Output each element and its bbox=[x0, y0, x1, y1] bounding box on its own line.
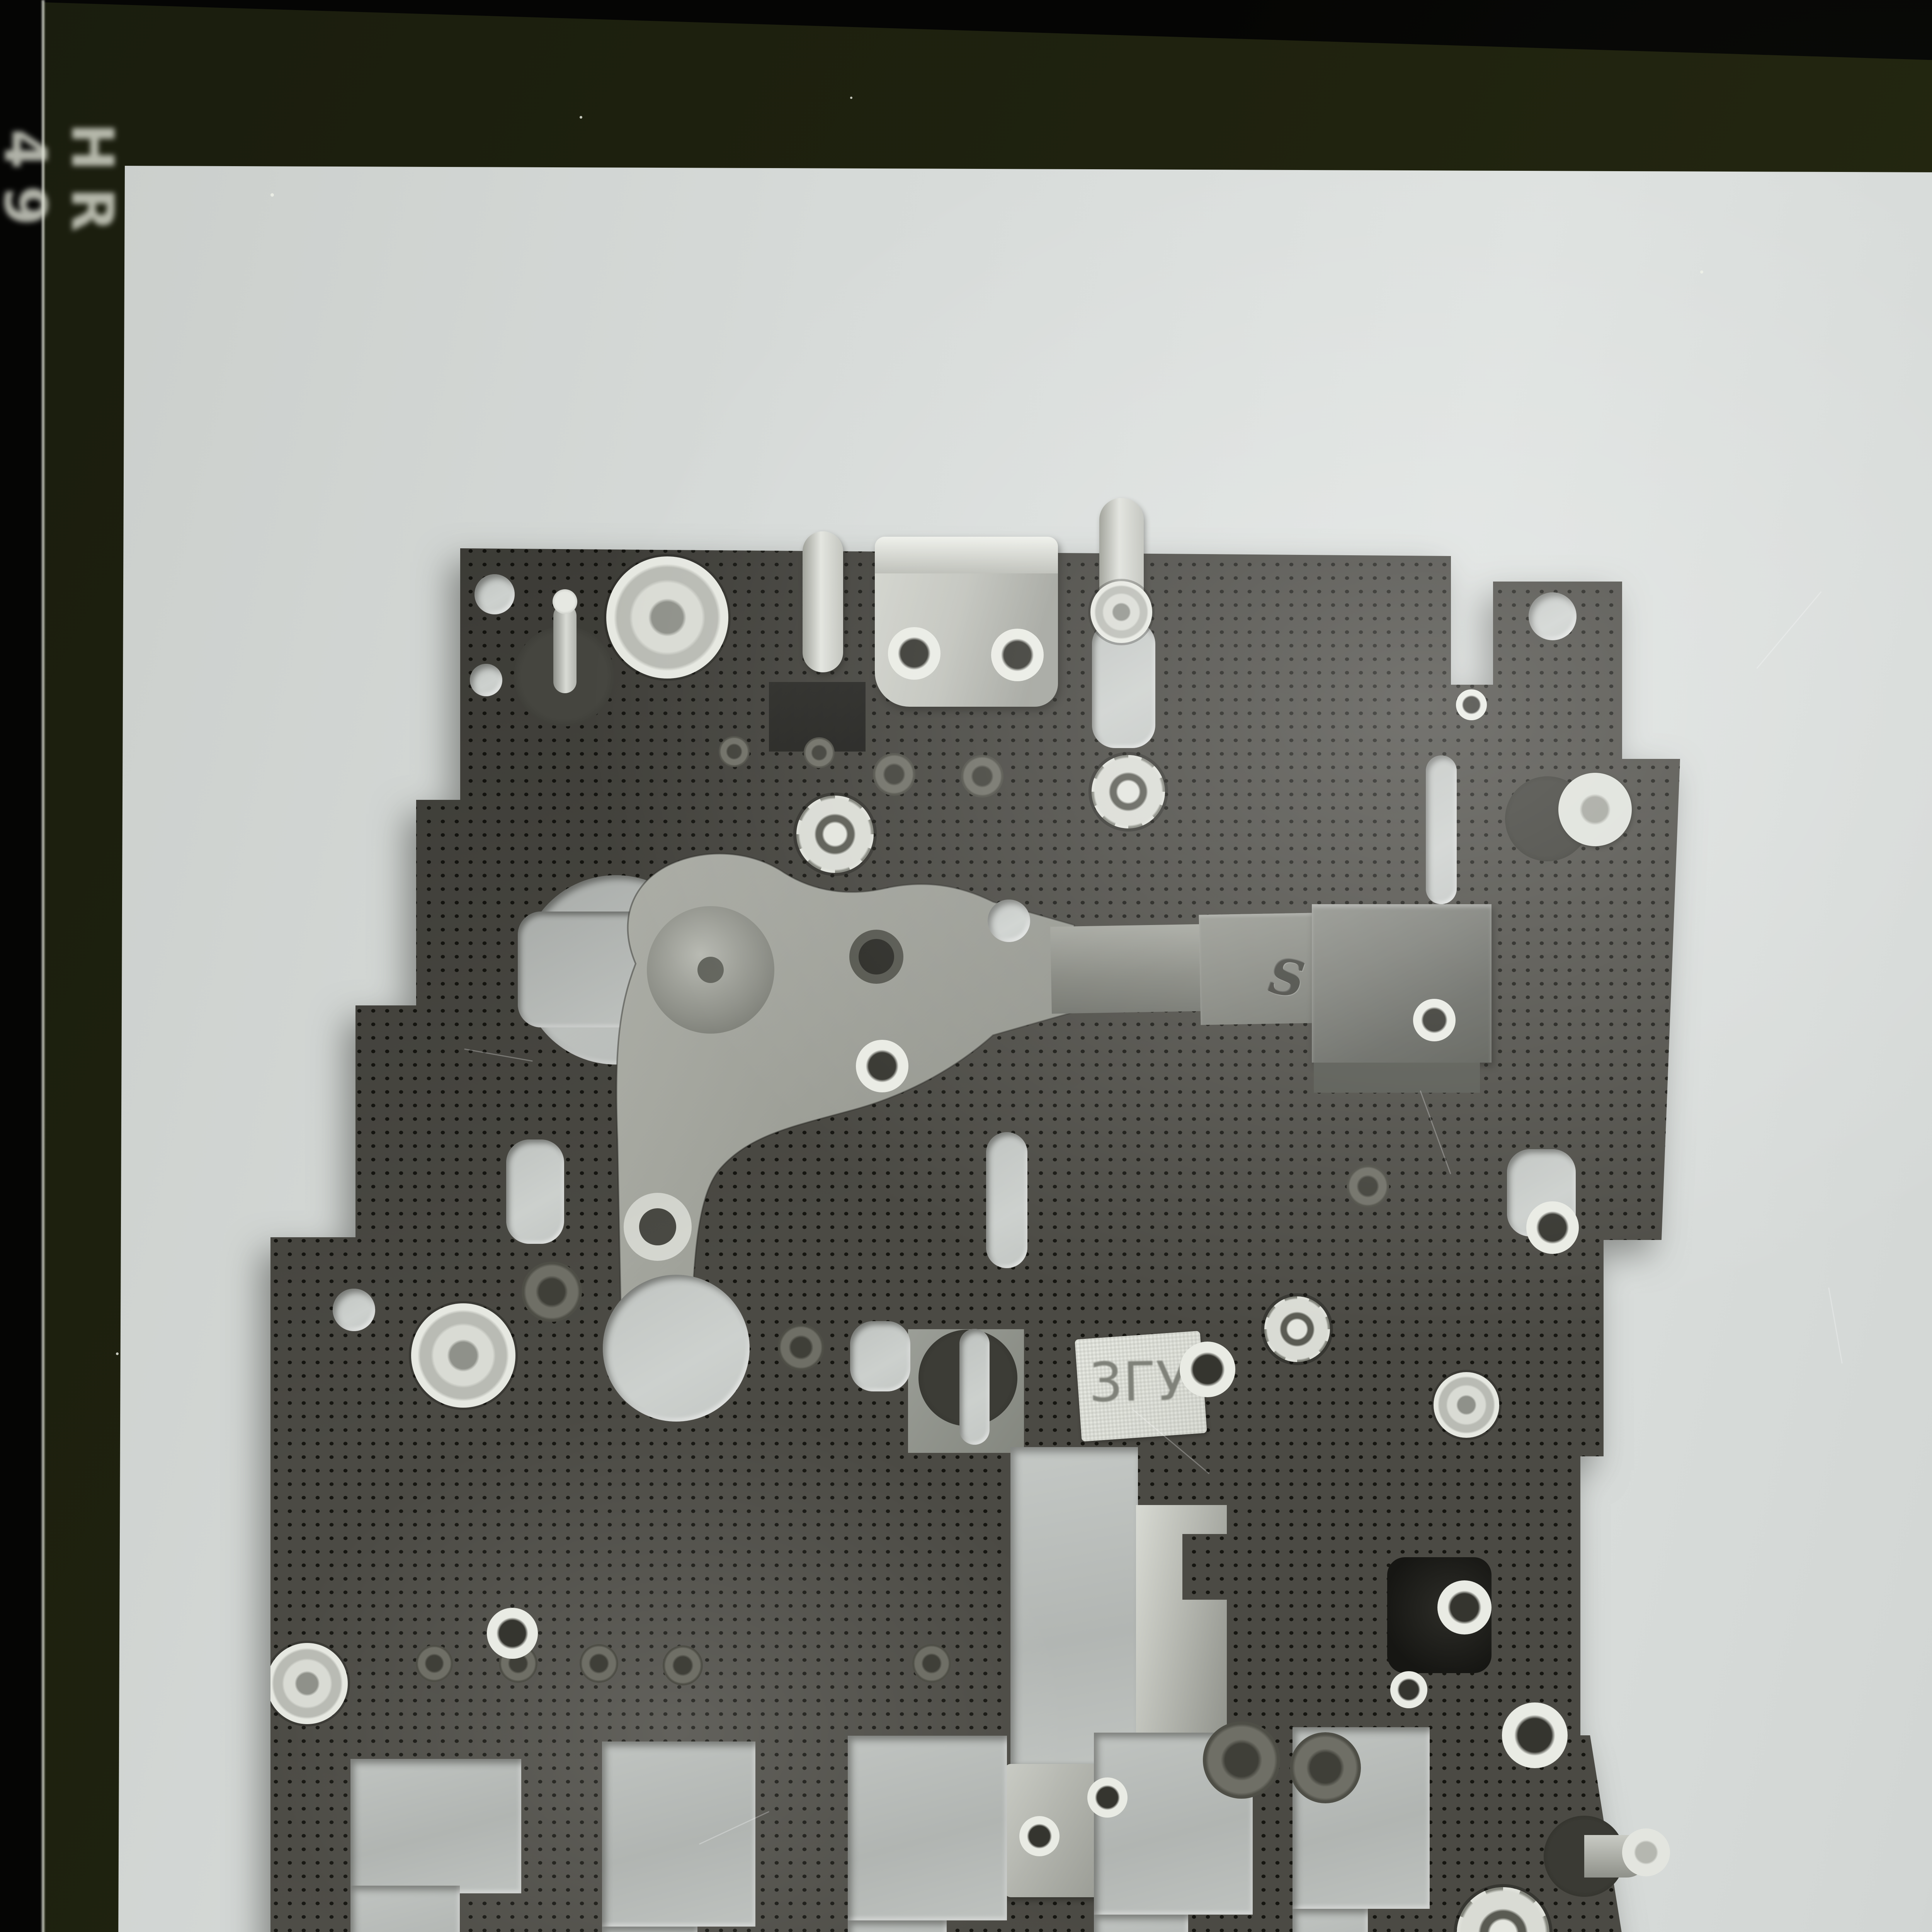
eyelet-grommet bbox=[1019, 1816, 1060, 1856]
plate-bay-cutout bbox=[848, 1736, 1007, 1920]
lever-foot-screw bbox=[681, 1328, 709, 1356]
sub-plate-hole bbox=[918, 1330, 1017, 1426]
stud-collar bbox=[1505, 776, 1590, 861]
plate-slot bbox=[1426, 755, 1457, 904]
dust-speck bbox=[116, 1352, 119, 1355]
dust-speck bbox=[270, 193, 274, 197]
plate-shadow-wrapper: S 3ГУ bbox=[116, 166, 1932, 1932]
plate-hole bbox=[603, 1275, 750, 1422]
stud-cap bbox=[1558, 773, 1632, 846]
eyelet-grommet bbox=[856, 1040, 908, 1092]
solder-pad bbox=[416, 1645, 453, 1682]
plate-slot bbox=[959, 1329, 990, 1445]
pin-post bbox=[553, 604, 577, 693]
dust-speck bbox=[580, 116, 582, 119]
solder-pad bbox=[719, 736, 750, 767]
plate-cutout-clover bbox=[521, 875, 711, 1065]
lock-washer bbox=[1264, 1296, 1330, 1362]
solder-pad bbox=[1347, 1165, 1389, 1207]
guide-pin-cylinder bbox=[803, 531, 843, 672]
solder-pad bbox=[961, 755, 1003, 798]
plate-slot bbox=[850, 1321, 910, 1391]
lever-hole-dark bbox=[849, 930, 903, 984]
washer-disc bbox=[1434, 1372, 1499, 1438]
lever-body bbox=[616, 854, 1074, 1375]
lever-hub-boss bbox=[647, 906, 774, 1034]
film-edge-highlight-left bbox=[42, 0, 44, 1932]
lock-washer bbox=[796, 796, 874, 873]
plate-slot bbox=[986, 1132, 1027, 1268]
plate-bay-cutout bbox=[1293, 1909, 1368, 1932]
solder-pad bbox=[1290, 1732, 1361, 1803]
pin-post-tip bbox=[553, 589, 577, 614]
lever-foot bbox=[636, 1311, 736, 1369]
plate-hole bbox=[1529, 592, 1577, 640]
clip-foot bbox=[1005, 1764, 1175, 1897]
washer-stack-post bbox=[1099, 498, 1144, 614]
eyelet-grommet bbox=[1502, 1702, 1568, 1768]
fiber-scratch bbox=[1828, 1287, 1843, 1364]
clip-roller bbox=[1160, 1783, 1206, 1830]
eyelet-grommet bbox=[1413, 999, 1456, 1041]
bracket-hole bbox=[991, 629, 1044, 681]
washer-disc bbox=[267, 1643, 348, 1724]
plate-hole bbox=[988, 900, 1030, 942]
plate-bay-cutout bbox=[848, 1920, 947, 1932]
plate-bay-cutout bbox=[350, 1759, 521, 1893]
plate-hole bbox=[639, 1282, 684, 1327]
solder-pad bbox=[580, 1644, 618, 1683]
plate-bay-cutout bbox=[602, 1927, 697, 1932]
dust-speck bbox=[850, 97, 852, 99]
pin-post-base bbox=[514, 626, 614, 726]
plate-slot bbox=[1092, 621, 1155, 748]
plate-hole bbox=[333, 1289, 375, 1331]
top-bracket bbox=[875, 537, 1058, 707]
fiber-scratch bbox=[699, 1811, 770, 1845]
lever-end-plate bbox=[1312, 904, 1492, 1063]
plate-bay-cutout bbox=[602, 1742, 755, 1927]
plate-hole bbox=[474, 574, 515, 614]
eyelet-grommet bbox=[1180, 1342, 1235, 1397]
stud-shaft bbox=[1584, 1835, 1648, 1878]
eyelet-grommet bbox=[1437, 1580, 1492, 1634]
lever-hub-rivet bbox=[697, 957, 724, 983]
stud-collar bbox=[1544, 1816, 1625, 1897]
plate-bay-cutout bbox=[1293, 1727, 1430, 1909]
film-edge-marking: HR 49 bbox=[64, 50, 126, 321]
lever-end-flange bbox=[1314, 1063, 1480, 1093]
solder-pad bbox=[804, 737, 835, 768]
fiber-scratch bbox=[1756, 591, 1821, 669]
solder-pad bbox=[663, 1645, 703, 1685]
bracket-hole bbox=[888, 627, 940, 680]
lever-bar bbox=[1050, 924, 1206, 1014]
cast-lever bbox=[502, 823, 1198, 1402]
tape-label: 3ГУ bbox=[1075, 1331, 1207, 1442]
plate-bay-cutout bbox=[1094, 1733, 1253, 1915]
plate-slot bbox=[506, 1139, 564, 1244]
solder-pad bbox=[873, 753, 915, 796]
lever-block: S bbox=[1199, 913, 1317, 1025]
plate-opening-center bbox=[1010, 1447, 1138, 1764]
washer-disc bbox=[411, 1303, 515, 1408]
sheet-clip bbox=[1136, 1505, 1227, 1766]
plate-dark-opening bbox=[769, 682, 866, 752]
bracket-rolled-edge bbox=[875, 537, 1058, 573]
plate-slot bbox=[1507, 1149, 1576, 1236]
lock-washer bbox=[1092, 755, 1165, 828]
eyelet-grommet bbox=[1526, 1201, 1579, 1254]
tape-label-text: 3ГУ bbox=[1088, 1350, 1190, 1415]
eyelet-grommet bbox=[1390, 1671, 1427, 1708]
solder-pad bbox=[499, 1644, 537, 1683]
eyelet-grommet bbox=[1456, 689, 1487, 720]
plate-bay-cutout bbox=[1094, 1915, 1188, 1932]
washer-disc bbox=[606, 556, 728, 679]
fiber-scratch bbox=[1420, 1090, 1451, 1174]
sub-plate-patch bbox=[908, 1329, 1024, 1453]
plate-cutout-arch bbox=[750, 923, 877, 1047]
lock-washer bbox=[1457, 1887, 1549, 1932]
dust-speck bbox=[1700, 270, 1703, 274]
eyelet-grommet bbox=[1087, 1777, 1128, 1818]
stud-cap bbox=[1622, 1828, 1670, 1876]
plate-bay-cutout bbox=[350, 1886, 460, 1932]
photo-paper: S 3ГУ bbox=[116, 166, 1932, 1932]
plate-hole bbox=[470, 664, 502, 696]
solder-pad bbox=[522, 1262, 582, 1322]
solder-pad bbox=[778, 1324, 824, 1371]
fiber-scratch bbox=[464, 1048, 533, 1061]
solder-pad bbox=[912, 1644, 951, 1683]
stamped-mark: S bbox=[1266, 948, 1308, 1009]
scanned-photo: HR 49 3 bbox=[0, 0, 1932, 1932]
solder-pad bbox=[1203, 1721, 1280, 1799]
eyelet-grommet bbox=[487, 1608, 538, 1659]
plate-lighting bbox=[116, 166, 1932, 1932]
chassis-plate: S 3ГУ bbox=[116, 166, 1932, 1932]
washer-stack-base bbox=[1090, 581, 1152, 643]
dark-standoff bbox=[1387, 1557, 1492, 1673]
lever-ring-hole bbox=[624, 1193, 692, 1261]
plate-cutout-clover-lobe bbox=[518, 912, 811, 1027]
fiber-scratch bbox=[1132, 1409, 1209, 1474]
